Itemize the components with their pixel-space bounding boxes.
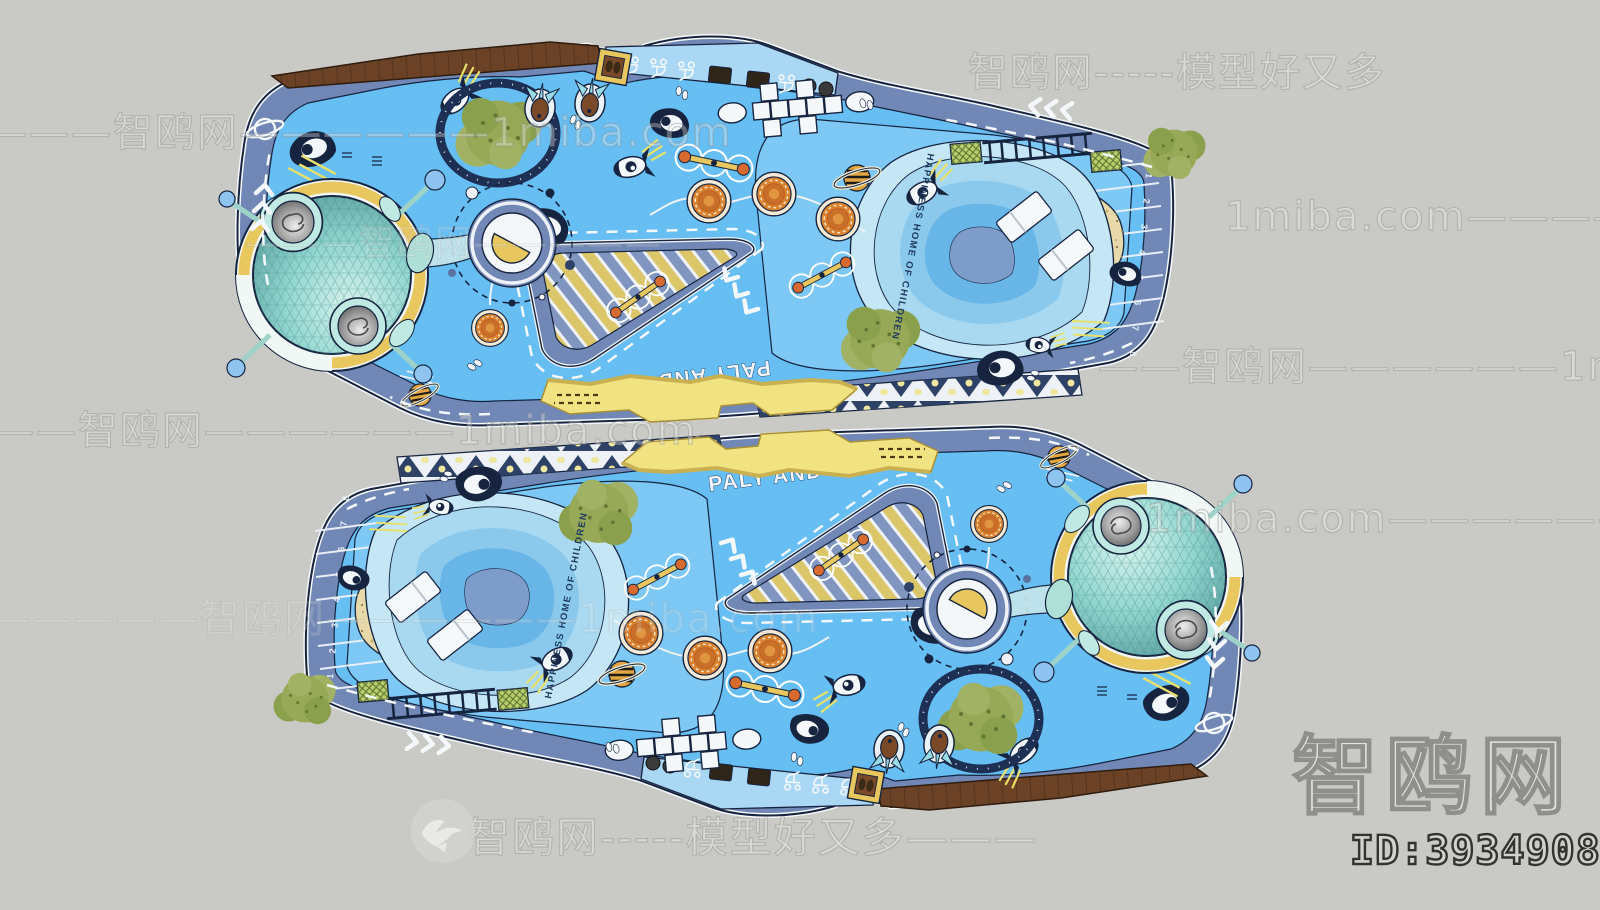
site-logo-text: 智鸥网 [1292,706,1574,831]
model-preview-stage: 1 2 3 4 5 6 7 8 [0,0,1600,910]
playground-bottom [274,427,1261,816]
model-id-text: ID:393490842 [1350,828,1600,874]
playground-top [219,37,1206,426]
seagull-logo-icon [408,796,478,866]
